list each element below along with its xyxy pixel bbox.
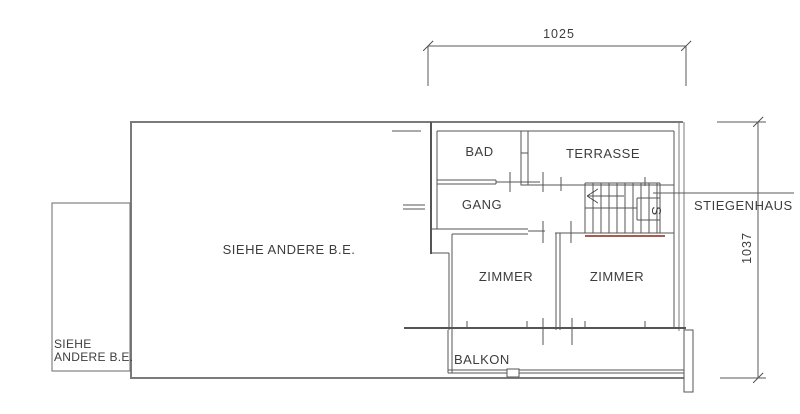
balcony-post [507, 369, 519, 377]
room-label-bad: BAD [437, 145, 522, 159]
room-label-balkon: BALKON [454, 353, 510, 367]
balcony-side-post [684, 330, 693, 392]
annex-label-line2: ANDERE B.E. [54, 350, 133, 364]
main-area-label: SIEHE ANDERE B.E. [164, 243, 414, 257]
stairwell-label: STIEGENHAUS [694, 199, 793, 213]
annex-label-line1: SIEHE [54, 337, 92, 351]
stair-direction-letter: S [649, 203, 663, 219]
room-label-gang: GANG [437, 198, 527, 212]
dimension-top [423, 41, 691, 86]
room-label-terrasse: TERRASSE [532, 147, 674, 161]
dimension-right-value: 1037 [740, 217, 754, 279]
dimension-top-value: 1025 [528, 27, 590, 41]
room-label-zimmer-right: ZIMMER [562, 270, 672, 284]
floor-plan-canvas: BAD TERRASSE GANG ZIMMER ZIMMER SIEHE AN… [0, 0, 800, 414]
room-label-zimmer-left: ZIMMER [454, 270, 558, 284]
